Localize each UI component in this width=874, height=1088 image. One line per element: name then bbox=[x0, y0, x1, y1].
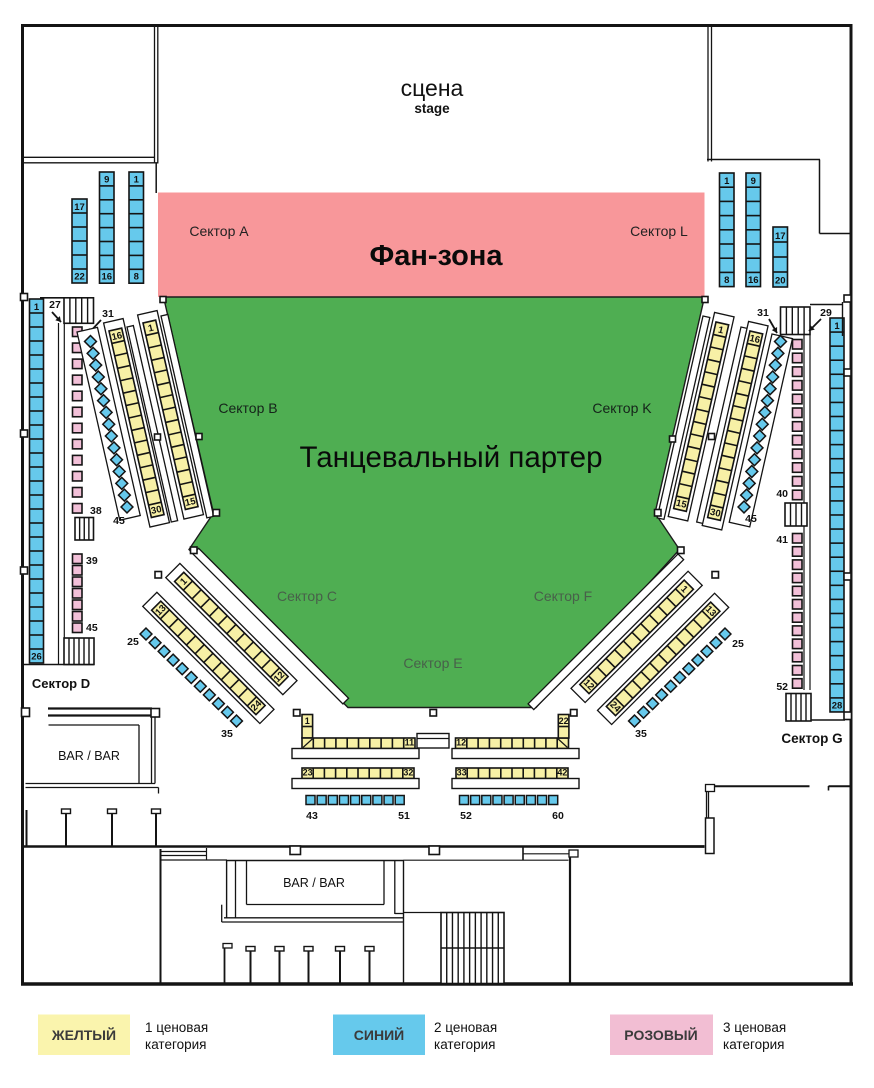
svg-text:38: 38 bbox=[90, 505, 102, 517]
svg-text:8: 8 bbox=[724, 275, 729, 286]
svg-text:РОЗОВЫЙ: РОЗОВЫЙ bbox=[624, 1026, 697, 1043]
svg-text:категория: категория bbox=[434, 1037, 495, 1052]
svg-text:Сектор B: Сектор B bbox=[218, 400, 277, 416]
svg-text:12: 12 bbox=[456, 738, 466, 748]
svg-text:8: 8 bbox=[134, 272, 139, 283]
svg-text:Фан-зона: Фан-зона bbox=[369, 240, 503, 272]
svg-text:1: 1 bbox=[724, 176, 730, 187]
svg-text:25: 25 bbox=[127, 636, 139, 648]
svg-text:41: 41 bbox=[776, 534, 788, 546]
svg-text:ЖЕЛТЫЙ: ЖЕЛТЫЙ bbox=[51, 1026, 116, 1043]
svg-text:Сектор E: Сектор E bbox=[403, 655, 462, 671]
svg-text:stage: stage bbox=[414, 101, 450, 116]
svg-text:22: 22 bbox=[559, 716, 569, 726]
svg-text:Сектор L: Сектор L bbox=[630, 223, 688, 239]
svg-text:35: 35 bbox=[221, 728, 233, 740]
svg-text:45: 45 bbox=[745, 513, 757, 525]
svg-text:16: 16 bbox=[101, 272, 112, 283]
svg-text:32: 32 bbox=[403, 768, 413, 778]
svg-text:9: 9 bbox=[104, 175, 109, 186]
svg-text:20: 20 bbox=[775, 275, 786, 286]
svg-text:52: 52 bbox=[460, 810, 472, 822]
svg-text:категория: категория bbox=[723, 1037, 784, 1052]
svg-text:1: 1 bbox=[134, 175, 140, 186]
svg-text:42: 42 bbox=[557, 768, 567, 778]
svg-text:Сектор G: Сектор G bbox=[781, 731, 842, 746]
svg-text:СИНИЙ: СИНИЙ bbox=[354, 1026, 404, 1043]
svg-text:39: 39 bbox=[86, 555, 98, 567]
svg-text:Сектор K: Сектор K bbox=[592, 400, 652, 416]
svg-text:1: 1 bbox=[305, 716, 310, 726]
svg-text:BAR / BAR: BAR / BAR bbox=[283, 876, 345, 890]
svg-text:35: 35 bbox=[635, 728, 647, 740]
svg-text:9: 9 bbox=[751, 176, 756, 187]
svg-text:52: 52 bbox=[776, 681, 788, 693]
svg-text:28: 28 bbox=[832, 700, 843, 711]
svg-text:60: 60 bbox=[552, 810, 564, 822]
svg-text:2 ценовая: 2 ценовая bbox=[434, 1020, 497, 1035]
svg-text:43: 43 bbox=[306, 810, 318, 822]
svg-text:25: 25 bbox=[732, 638, 744, 650]
svg-text:Сектор C: Сектор C bbox=[277, 588, 337, 604]
svg-text:40: 40 bbox=[776, 488, 788, 500]
svg-text:11: 11 bbox=[405, 738, 415, 748]
svg-text:31: 31 bbox=[102, 308, 114, 320]
svg-text:51: 51 bbox=[398, 810, 410, 822]
svg-text:29: 29 bbox=[820, 307, 832, 319]
svg-text:1: 1 bbox=[34, 302, 40, 313]
svg-text:1 ценовая: 1 ценовая bbox=[145, 1020, 208, 1035]
svg-text:Сектор F: Сектор F bbox=[534, 588, 592, 604]
svg-text:22: 22 bbox=[74, 271, 85, 282]
svg-text:23: 23 bbox=[303, 768, 313, 778]
svg-text:17: 17 bbox=[775, 231, 786, 242]
svg-text:категория: категория bbox=[145, 1037, 206, 1052]
svg-text:17: 17 bbox=[74, 202, 85, 213]
svg-text:33: 33 bbox=[457, 768, 467, 778]
svg-text:1: 1 bbox=[834, 321, 840, 332]
svg-text:31: 31 bbox=[757, 307, 769, 319]
svg-text:сцена: сцена bbox=[401, 75, 464, 101]
svg-text:BAR / BAR: BAR / BAR bbox=[58, 749, 120, 763]
svg-text:Сектор D: Сектор D bbox=[32, 676, 90, 691]
svg-text:45: 45 bbox=[113, 515, 125, 527]
svg-text:3 ценовая: 3 ценовая bbox=[723, 1020, 786, 1035]
svg-text:27: 27 bbox=[49, 299, 61, 311]
svg-text:16: 16 bbox=[748, 275, 759, 286]
svg-text:Танцевальный партер: Танцевальный партер bbox=[300, 441, 603, 474]
svg-text:Сектор A: Сектор A bbox=[189, 223, 249, 239]
svg-text:45: 45 bbox=[86, 622, 98, 634]
svg-text:26: 26 bbox=[31, 651, 42, 662]
